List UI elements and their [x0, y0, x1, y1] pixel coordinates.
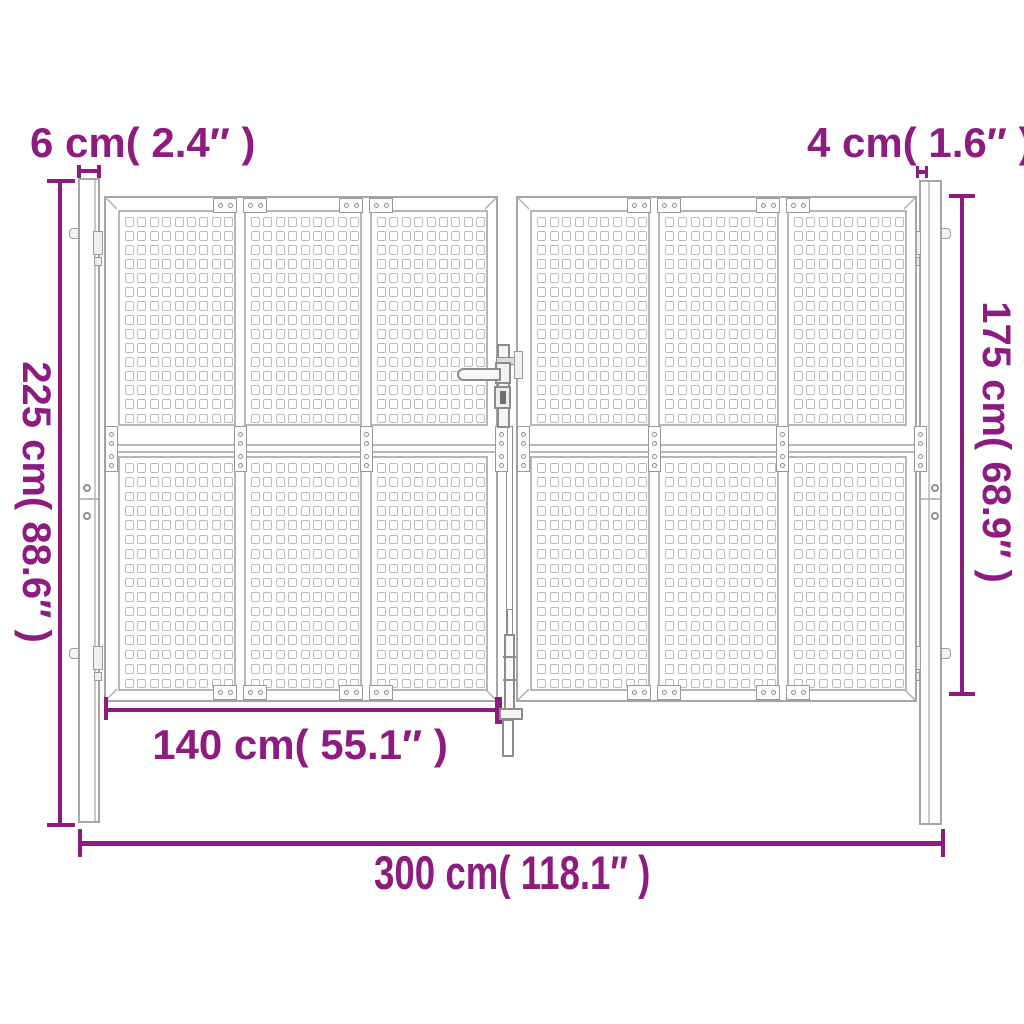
perforation-hole — [224, 273, 233, 283]
perforation-hole — [575, 564, 584, 574]
perforation-hole — [870, 329, 879, 339]
perforation-hole — [741, 592, 750, 602]
perforation-hole — [350, 399, 359, 409]
perforation-hole — [716, 231, 725, 241]
drop-rod-tip — [507, 609, 513, 636]
perforation-hole — [464, 245, 473, 255]
perforation-hole — [562, 492, 571, 502]
perforation-hole — [741, 549, 750, 559]
perforation-hole — [588, 343, 597, 353]
perforation-hole — [224, 492, 233, 502]
perforation-hole — [729, 357, 738, 367]
perforation-hole — [439, 315, 448, 325]
perforation-hole — [844, 621, 853, 631]
perforation-hole — [263, 520, 272, 530]
perforation-hole — [844, 217, 853, 227]
perforation-hole — [857, 492, 866, 502]
perforation-hole — [678, 259, 687, 269]
perforation-hole — [703, 371, 712, 381]
perforation-hole — [288, 506, 297, 516]
perforation-hole — [703, 592, 712, 602]
perforation-hole — [175, 301, 184, 311]
perforation-hole — [187, 329, 196, 339]
perforation-hole — [476, 477, 485, 487]
perforation-hole — [175, 371, 184, 381]
perforation-hole — [588, 578, 597, 588]
perforation-hole — [844, 592, 853, 602]
perforation-hole — [451, 287, 460, 297]
perforation-hole — [767, 343, 776, 353]
perforation-hole — [137, 399, 146, 409]
plate-bolt-hole — [248, 690, 253, 695]
perforation-hole — [613, 679, 622, 689]
perforation-hole — [588, 217, 597, 227]
perforation-hole — [402, 217, 411, 227]
perforation-hole — [313, 535, 322, 545]
perforation-hole — [691, 329, 700, 339]
perforation-hole — [562, 592, 571, 602]
perforation-hole — [377, 506, 386, 516]
perforation-hole — [175, 520, 184, 530]
plate-bolt-hole — [499, 432, 504, 437]
perforation-hole — [767, 592, 776, 602]
perforation-hole — [251, 231, 260, 241]
right-post-bolt — [931, 484, 939, 492]
perforation-hole — [137, 679, 146, 689]
plate-bolt-hole — [672, 203, 677, 208]
perforation-hole — [427, 217, 436, 227]
perforation-hole — [251, 217, 260, 227]
perforation-hole — [350, 506, 359, 516]
perforation-hole — [389, 621, 398, 631]
perforation-hole — [613, 664, 622, 674]
perforation-hole — [377, 287, 386, 297]
perforation-hole — [125, 650, 134, 660]
perforation-hole — [729, 578, 738, 588]
perforation-hole — [806, 520, 815, 530]
perforation-hole — [626, 635, 635, 645]
plate-bolt-hole — [761, 690, 766, 695]
perforation-hole — [857, 399, 866, 409]
perforation-hole — [665, 549, 674, 559]
perforation-hole — [716, 463, 725, 473]
perforation-hole — [439, 217, 448, 227]
perforation-hole — [451, 245, 460, 255]
plate-bolt-hole — [771, 690, 776, 695]
perforation-hole — [325, 245, 334, 255]
perforation-hole — [288, 399, 297, 409]
perforation-hole — [832, 592, 841, 602]
plate-bolt-hole — [218, 203, 223, 208]
perforation-hole — [716, 329, 725, 339]
perforation-hole — [476, 621, 485, 631]
perforation-hole — [439, 650, 448, 660]
perforation-hole — [350, 492, 359, 502]
perforation-hole — [301, 635, 310, 645]
perforation-hole — [162, 578, 171, 588]
perforation-hole — [537, 492, 546, 502]
perforation-hole — [439, 245, 448, 255]
perforation-hole — [212, 329, 221, 339]
perforation-hole — [414, 549, 423, 559]
perforation-hole — [626, 343, 635, 353]
perforation-hole — [263, 231, 272, 241]
perforation-hole — [451, 535, 460, 545]
perforation-hole — [125, 463, 134, 473]
perforation-hole — [427, 564, 436, 574]
perforation-hole — [212, 477, 221, 487]
perforation-hole — [665, 578, 674, 588]
perforation-hole — [678, 549, 687, 559]
perforation-hole — [263, 399, 272, 409]
dimension-cap — [47, 823, 75, 827]
mid-rail-plate — [360, 426, 373, 472]
perforation-hole — [199, 564, 208, 574]
perforation-hole — [716, 371, 725, 381]
perforation-hole — [741, 578, 750, 588]
perforation-hole — [575, 520, 584, 530]
perforation-hole — [691, 679, 700, 689]
perforation-hole — [588, 477, 597, 487]
perforation-hole — [476, 520, 485, 530]
perforation-hole — [414, 315, 423, 325]
perforation-hole — [313, 592, 322, 602]
perforation-hole — [162, 549, 171, 559]
perforation-hole — [199, 259, 208, 269]
perforation-hole — [716, 399, 725, 409]
perforation-hole — [819, 385, 828, 395]
perforation-hole — [439, 492, 448, 502]
perforation-hole — [575, 492, 584, 502]
perforation-hole — [882, 414, 891, 424]
perforation-hole — [691, 578, 700, 588]
perforation-hole — [754, 245, 763, 255]
perforation-hole — [678, 217, 687, 227]
perforation-hole — [251, 301, 260, 311]
perforation-hole — [844, 245, 853, 255]
perforation-hole — [665, 664, 674, 674]
perforation-hole — [162, 664, 171, 674]
perforation-hole — [767, 385, 776, 395]
perforation-hole — [251, 664, 260, 674]
perforation-hole — [741, 315, 750, 325]
drop-rod-mark — [503, 656, 516, 658]
perforation-hole — [263, 217, 272, 227]
plate-bolt-hole — [642, 203, 647, 208]
perforation-hole — [162, 635, 171, 645]
perforation-hole — [464, 357, 473, 367]
perforation-hole — [562, 463, 571, 473]
perforation-hole — [301, 301, 310, 311]
perforation-hole — [199, 520, 208, 530]
perforation-hole — [703, 578, 712, 588]
perforation-hole — [691, 664, 700, 674]
rail-connector-plate — [339, 685, 363, 700]
plate-bolt-hole — [662, 203, 667, 208]
perforation-hole — [794, 506, 803, 516]
perforation-hole — [276, 217, 285, 227]
perforation-hole — [537, 231, 546, 241]
perforation-hole — [451, 520, 460, 530]
plate-bolt-hole — [652, 454, 657, 459]
perforation-hole — [638, 287, 647, 297]
perforation-hole — [162, 535, 171, 545]
perforation-hole — [562, 245, 571, 255]
perforation-hole — [844, 231, 853, 241]
perforation-hole — [464, 385, 473, 395]
perforation-hole — [550, 259, 559, 269]
perforation-hole — [187, 621, 196, 631]
perforation-hole — [665, 463, 674, 473]
perforation-hole — [613, 231, 622, 241]
perforation-hole — [794, 535, 803, 545]
perforation-hole — [476, 259, 485, 269]
perforation-hole — [562, 287, 571, 297]
perforation-hole — [638, 549, 647, 559]
perforation-hole — [451, 463, 460, 473]
perforation-hole — [175, 217, 184, 227]
perforation-hole — [150, 371, 159, 381]
gate-panel — [370, 210, 488, 426]
perforation-hole — [301, 259, 310, 269]
perforation-hole — [389, 245, 398, 255]
perforation-hole — [439, 259, 448, 269]
perforation-hole — [716, 679, 725, 689]
perforation-hole — [251, 564, 260, 574]
perforation-hole — [754, 463, 763, 473]
perforation-hole — [476, 592, 485, 602]
perforation-hole — [150, 463, 159, 473]
perforation-hole — [550, 399, 559, 409]
plate-bolt-hole — [771, 203, 776, 208]
perforation-hole — [251, 399, 260, 409]
perforation-hole — [199, 679, 208, 689]
perforation-hole — [550, 549, 559, 559]
perforation-hole — [832, 399, 841, 409]
perforation-hole — [175, 621, 184, 631]
perforation-hole — [600, 607, 609, 617]
perforation-hole — [162, 385, 171, 395]
perforation-hole — [806, 506, 815, 516]
drop-rod-mark — [503, 679, 516, 681]
perforation-hole — [476, 664, 485, 674]
perforation-hole — [600, 520, 609, 530]
perforation-hole — [678, 287, 687, 297]
perforation-hole — [476, 343, 485, 353]
perforation-hole — [691, 564, 700, 574]
perforation-hole — [150, 231, 159, 241]
perforation-hole — [638, 315, 647, 325]
perforation-hole — [575, 301, 584, 311]
perforation-hole — [313, 679, 322, 689]
perforation-hole — [844, 664, 853, 674]
perforation-hole — [895, 301, 904, 311]
plate-bolt-hole — [652, 432, 657, 437]
perforation-hole — [276, 385, 285, 395]
perforation-hole — [895, 287, 904, 297]
perforation-hole — [626, 273, 635, 283]
perforation-hole — [276, 506, 285, 516]
perforation-hole — [224, 399, 233, 409]
perforation-hole — [313, 650, 322, 660]
perforation-hole — [691, 385, 700, 395]
perforation-hole — [377, 301, 386, 311]
perforation-hole — [402, 564, 411, 574]
perforation-hole — [276, 650, 285, 660]
perforation-hole — [870, 245, 879, 255]
plate-bolt-hole — [109, 432, 114, 437]
perforation-hole — [476, 535, 485, 545]
perforation-hole — [729, 477, 738, 487]
perforation-hole — [476, 231, 485, 241]
perforation-hole — [377, 357, 386, 367]
perforation-hole — [377, 463, 386, 473]
perforation-hole — [562, 259, 571, 269]
gate-panel — [118, 210, 236, 426]
perforation-hole — [251, 385, 260, 395]
perforation-hole — [588, 231, 597, 241]
perforation-hole — [162, 520, 171, 530]
perforation-hole — [613, 477, 622, 487]
perforation-hole — [895, 578, 904, 588]
perforation-hole — [832, 357, 841, 367]
perforation-hole — [427, 231, 436, 241]
perforation-hole — [882, 564, 891, 574]
perforation-hole — [137, 535, 146, 545]
perforation-hole — [575, 385, 584, 395]
perforation-hole — [588, 564, 597, 574]
perforation-hole — [716, 621, 725, 631]
perforation-hole — [550, 357, 559, 367]
perforation-hole — [175, 259, 184, 269]
perforation-hole — [613, 635, 622, 645]
perforation-hole — [464, 592, 473, 602]
perforation-hole — [414, 371, 423, 381]
perforation-hole — [870, 343, 879, 353]
perforation-hole — [703, 273, 712, 283]
perforation-hole — [125, 329, 134, 339]
perforation-hole — [819, 564, 828, 574]
perforation-hole — [678, 343, 687, 353]
perforation-hole — [251, 357, 260, 367]
perforation-hole — [575, 287, 584, 297]
perforation-hole — [613, 607, 622, 617]
perforation-hole — [895, 592, 904, 602]
perforation-hole — [251, 506, 260, 516]
perforation-hole — [451, 259, 460, 269]
perforation-hole — [691, 477, 700, 487]
perforation-hole — [550, 635, 559, 645]
perforation-hole — [857, 607, 866, 617]
perforation-hole — [562, 343, 571, 353]
perforation-hole — [325, 287, 334, 297]
perforation-hole — [832, 259, 841, 269]
perforation-hole — [212, 463, 221, 473]
perforation-hole — [402, 357, 411, 367]
perforation-hole — [414, 635, 423, 645]
perforation-hole — [729, 607, 738, 617]
perforation-hole — [844, 506, 853, 516]
perforation-hole — [832, 635, 841, 645]
perforation-hole — [325, 592, 334, 602]
perforation-hole — [600, 506, 609, 516]
perforation-hole — [251, 371, 260, 381]
perforation-hole — [575, 621, 584, 631]
perforation-hole — [313, 399, 322, 409]
perforation-hole — [476, 273, 485, 283]
perforation-hole — [575, 357, 584, 367]
perforation-hole — [832, 245, 841, 255]
perforation-hole — [716, 607, 725, 617]
perforation-hole — [276, 414, 285, 424]
perforation-hole — [263, 371, 272, 381]
perforation-hole — [301, 343, 310, 353]
perforation-hole — [263, 315, 272, 325]
perforation-hole — [276, 301, 285, 311]
perforation-hole — [301, 217, 310, 227]
perforation-hole — [137, 664, 146, 674]
perforation-hole — [562, 329, 571, 339]
perforation-hole — [767, 477, 776, 487]
perforation-hole — [806, 343, 815, 353]
perforation-hole — [150, 273, 159, 283]
perforation-hole — [794, 245, 803, 255]
perforation-hole — [678, 621, 687, 631]
perforation-hole — [575, 477, 584, 487]
perforation-hole — [691, 273, 700, 283]
perforation-hole — [857, 477, 866, 487]
perforation-hole — [427, 385, 436, 395]
perforation-hole — [338, 329, 347, 339]
perforation-hole — [464, 399, 473, 409]
perforation-hole — [224, 477, 233, 487]
perforation-hole — [537, 621, 546, 631]
perforation-hole — [263, 549, 272, 559]
perforation-hole — [150, 578, 159, 588]
perforation-hole — [476, 549, 485, 559]
perforation-hole — [665, 492, 674, 502]
perforation-hole — [729, 621, 738, 631]
perforation-hole — [199, 385, 208, 395]
perforation-hole — [691, 287, 700, 297]
perforation-hole — [276, 549, 285, 559]
perforation-hole — [882, 578, 891, 588]
perforation-hole — [819, 245, 828, 255]
perforation-hole — [199, 492, 208, 502]
perforation-hole — [175, 273, 184, 283]
product-dimension-diagram: 6 cm( 2.4″ ) 4 cm( 1.6″ ) 225 cm( 88.6″ … — [0, 0, 1024, 1024]
perforation-hole — [162, 371, 171, 381]
perforation-hole — [402, 287, 411, 297]
perforation-hole — [162, 231, 171, 241]
perforation-hole — [626, 621, 635, 631]
perforation-hole — [703, 231, 712, 241]
perforation-hole — [427, 399, 436, 409]
perforation-hole — [819, 217, 828, 227]
perforation-hole — [175, 492, 184, 502]
perforation-hole — [187, 343, 196, 353]
perforation-hole — [870, 607, 879, 617]
perforation-hole — [794, 564, 803, 574]
perforation-hole — [301, 592, 310, 602]
perforation-hole — [575, 650, 584, 660]
perforation-hole — [288, 301, 297, 311]
perforation-hole — [857, 287, 866, 297]
perforation-hole — [857, 217, 866, 227]
perforation-hole — [451, 343, 460, 353]
plate-bolt-hole — [218, 690, 223, 695]
perforation-hole — [665, 315, 674, 325]
